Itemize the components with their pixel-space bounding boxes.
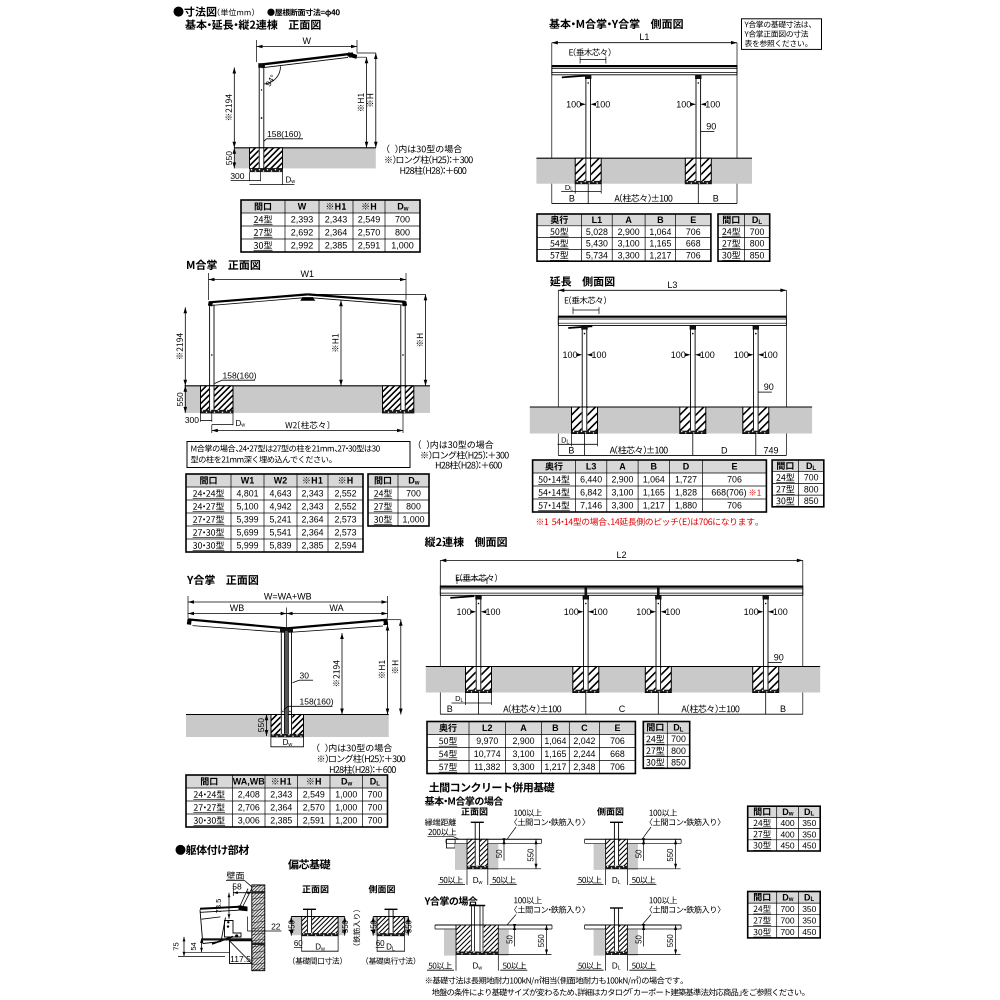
- svg-text:2,244: 2,244: [573, 749, 595, 759]
- svg-text:2,549: 2,549: [358, 215, 381, 225]
- svg-text:L: L: [680, 726, 684, 733]
- svg-text:700: 700: [368, 790, 383, 800]
- svg-text:3,100: 3,100: [611, 488, 633, 498]
- svg-text:400: 400: [780, 829, 794, 839]
- svg-text:350: 350: [802, 904, 816, 914]
- svg-text:2,900: 2,900: [611, 475, 633, 485]
- svg-text:B: B: [657, 215, 664, 225]
- svg-text:550: 550: [404, 919, 413, 933]
- svg-text:L: L: [376, 780, 380, 787]
- svg-text:11,382: 11,382: [474, 762, 500, 772]
- svg-text:1,064: 1,064: [649, 227, 671, 237]
- svg-text:L2: L2: [482, 723, 493, 733]
- svg-text:668: 668: [686, 239, 701, 249]
- svg-text:W=WA+WB: W=WA+WB: [264, 592, 312, 602]
- svg-text:850: 850: [671, 758, 686, 768]
- svg-text:6,440: 6,440: [580, 475, 602, 485]
- svg-text:1,880: 1,880: [675, 501, 697, 511]
- svg-text:1,000: 1,000: [335, 790, 357, 800]
- svg-text:1,217: 1,217: [544, 762, 566, 772]
- svg-text:2,692: 2,692: [291, 228, 314, 238]
- svg-text:W: W: [303, 36, 312, 46]
- svg-text:100: 100: [744, 607, 759, 617]
- svg-text:800: 800: [750, 239, 765, 249]
- svg-text:2,591: 2,591: [303, 816, 325, 826]
- svg-text:100: 100: [566, 100, 581, 110]
- svg-text:100: 100: [700, 350, 715, 360]
- svg-text:w: w: [290, 179, 295, 185]
- svg-text:1,828: 1,828: [675, 488, 697, 498]
- svg-text:706: 706: [610, 736, 625, 746]
- svg-text:700: 700: [780, 916, 794, 926]
- svg-text:L: L: [811, 811, 815, 818]
- svg-text:300: 300: [230, 171, 244, 181]
- svg-text:706: 706: [610, 762, 625, 772]
- svg-text:100: 100: [636, 607, 651, 617]
- svg-text:2,570: 2,570: [358, 228, 381, 238]
- svg-text:5,100: 5,100: [236, 502, 258, 512]
- svg-text:1,217: 1,217: [643, 501, 665, 511]
- svg-text:L3: L3: [667, 280, 677, 290]
- svg-text:450: 450: [780, 840, 794, 850]
- svg-text:2,348: 2,348: [573, 762, 595, 772]
- svg-text:3,300: 3,300: [512, 762, 534, 772]
- svg-text:B: B: [780, 704, 786, 714]
- svg-text:2,549: 2,549: [303, 790, 325, 800]
- svg-text:W1: W1: [301, 269, 315, 279]
- svg-text:5,734: 5,734: [586, 250, 608, 260]
- svg-text:2,573: 2,573: [334, 515, 356, 525]
- svg-text:5,541: 5,541: [269, 528, 291, 538]
- svg-text:w: w: [788, 896, 794, 903]
- svg-text:w: w: [788, 811, 794, 818]
- svg-text:117.5: 117.5: [230, 954, 251, 964]
- svg-text:5,699: 5,699: [236, 528, 258, 538]
- svg-text:5,241: 5,241: [269, 515, 291, 525]
- svg-text:4,801: 4,801: [236, 489, 258, 499]
- svg-text:2,343: 2,343: [270, 790, 292, 800]
- svg-text:158(160): 158(160): [267, 129, 301, 139]
- svg-text:w: w: [346, 780, 352, 787]
- svg-text:L1: L1: [592, 215, 603, 225]
- svg-text:2,992: 2,992: [291, 241, 314, 251]
- svg-text:50: 50: [634, 935, 643, 944]
- svg-text:L2: L2: [617, 550, 627, 560]
- svg-text:L1: L1: [639, 32, 649, 42]
- svg-text:90: 90: [764, 382, 774, 392]
- svg-text:700: 700: [804, 473, 819, 483]
- svg-text:7,146: 7,146: [580, 501, 602, 511]
- svg-text:1,200: 1,200: [335, 816, 357, 826]
- svg-text:400: 400: [780, 818, 794, 828]
- svg-text:100: 100: [773, 607, 788, 617]
- svg-text:5,999: 5,999: [236, 541, 258, 551]
- svg-text:100: 100: [763, 350, 778, 360]
- svg-text:30: 30: [300, 671, 310, 681]
- svg-text:550: 550: [175, 392, 185, 406]
- svg-text:W2: W2: [274, 476, 288, 486]
- svg-text:2,591: 2,591: [358, 241, 381, 251]
- svg-text:450: 450: [369, 919, 378, 933]
- svg-text:L: L: [392, 946, 395, 952]
- svg-text:WA,WB: WA,WB: [233, 777, 265, 787]
- svg-text:1,064: 1,064: [544, 736, 566, 746]
- svg-text:50: 50: [505, 935, 514, 944]
- svg-text:L: L: [811, 896, 815, 903]
- svg-text:2,552: 2,552: [334, 502, 356, 512]
- svg-text:1,000: 1,000: [335, 803, 357, 813]
- svg-text:50: 50: [634, 849, 643, 858]
- svg-text:3,300: 3,300: [618, 250, 640, 260]
- svg-text:1,165: 1,165: [643, 488, 665, 498]
- svg-text:w: w: [240, 423, 245, 429]
- svg-text:100: 100: [486, 607, 501, 617]
- svg-text:550: 550: [341, 919, 350, 933]
- svg-text:2,706: 2,706: [238, 803, 260, 813]
- svg-text:350: 350: [802, 829, 816, 839]
- svg-text:100: 100: [595, 100, 610, 110]
- svg-text:700: 700: [671, 734, 686, 744]
- svg-text:2,042: 2,042: [573, 736, 595, 746]
- svg-text:2,900: 2,900: [512, 736, 534, 746]
- svg-text:B: B: [568, 445, 574, 455]
- svg-text:706: 706: [686, 227, 701, 237]
- svg-text:1,165: 1,165: [649, 239, 671, 249]
- svg-text:100: 100: [456, 607, 471, 617]
- svg-text:158(160): 158(160): [223, 371, 257, 381]
- svg-text:550: 550: [224, 151, 234, 165]
- svg-text:450: 450: [802, 840, 816, 850]
- svg-text:WA: WA: [329, 603, 343, 613]
- svg-text:550: 550: [666, 934, 675, 948]
- svg-text:550: 550: [666, 848, 675, 862]
- svg-text:2,364: 2,364: [301, 515, 323, 525]
- svg-text:2,408: 2,408: [238, 790, 260, 800]
- svg-text:w: w: [287, 742, 292, 748]
- svg-text:2,343: 2,343: [325, 215, 348, 225]
- svg-text:100: 100: [592, 350, 607, 360]
- svg-text:B: B: [569, 194, 575, 204]
- svg-text:2,393: 2,393: [291, 215, 314, 225]
- svg-text:2,900: 2,900: [618, 227, 640, 237]
- svg-text:700: 700: [780, 927, 794, 937]
- svg-text:100: 100: [564, 607, 579, 617]
- svg-text:1,000: 1,000: [391, 241, 414, 251]
- svg-text:2,570: 2,570: [303, 803, 325, 813]
- svg-text:100: 100: [562, 350, 577, 360]
- svg-text:4,643: 4,643: [269, 489, 291, 499]
- svg-text:350: 350: [802, 818, 816, 828]
- svg-text:2,594: 2,594: [334, 541, 356, 551]
- svg-text:706: 706: [686, 250, 701, 260]
- svg-text:2,385: 2,385: [301, 541, 323, 551]
- svg-text:L: L: [618, 966, 621, 972]
- svg-text:706: 706: [727, 475, 742, 485]
- svg-text:w: w: [403, 206, 409, 213]
- svg-text:B: B: [651, 462, 658, 472]
- svg-text:700: 700: [395, 215, 410, 225]
- svg-text:54: 54: [189, 942, 198, 950]
- svg-text:L: L: [812, 465, 816, 472]
- svg-text:3,006: 3,006: [238, 816, 260, 826]
- svg-text:L: L: [567, 439, 570, 445]
- svg-text:100: 100: [676, 100, 691, 110]
- svg-text:5,028: 5,028: [586, 227, 608, 237]
- svg-text:706: 706: [727, 501, 742, 511]
- svg-text:5,430: 5,430: [586, 239, 608, 249]
- svg-text:2,385: 2,385: [325, 241, 348, 251]
- svg-text:94°: 94°: [264, 73, 278, 88]
- svg-text:2,552: 2,552: [334, 489, 356, 499]
- svg-text:100: 100: [665, 607, 680, 617]
- svg-text:158(160): 158(160): [300, 697, 334, 707]
- svg-text:4,942: 4,942: [269, 502, 291, 512]
- svg-text:B: B: [447, 704, 453, 714]
- svg-text:2,343: 2,343: [301, 489, 323, 499]
- svg-text:6,842: 6,842: [580, 488, 602, 498]
- svg-text:700: 700: [368, 803, 383, 813]
- svg-text:L: L: [758, 219, 762, 226]
- svg-text:w: w: [477, 880, 482, 886]
- svg-text:E: E: [614, 723, 620, 733]
- svg-text:2,364: 2,364: [325, 228, 348, 238]
- svg-text:800: 800: [804, 484, 819, 494]
- svg-text:1,217: 1,217: [649, 250, 671, 260]
- svg-text:668: 668: [610, 749, 625, 759]
- svg-text:B: B: [713, 194, 719, 204]
- svg-text:WB: WB: [230, 603, 245, 613]
- svg-text:700: 700: [368, 816, 383, 826]
- svg-text:22: 22: [271, 922, 281, 932]
- svg-text:100: 100: [705, 100, 720, 110]
- svg-text:850: 850: [804, 496, 819, 506]
- svg-text:W1: W1: [241, 476, 255, 486]
- svg-text:350: 350: [802, 916, 816, 926]
- svg-text:A: A: [625, 215, 632, 225]
- svg-text:2,573: 2,573: [334, 528, 356, 538]
- svg-text:10,774: 10,774: [474, 749, 501, 759]
- svg-text:700: 700: [780, 904, 794, 914]
- svg-text:w: w: [477, 966, 482, 972]
- svg-text:L: L: [570, 187, 573, 193]
- svg-text:1,000: 1,000: [402, 515, 424, 525]
- svg-text:9,970: 9,970: [476, 736, 498, 746]
- svg-text:2,385: 2,385: [270, 816, 292, 826]
- svg-text:450: 450: [287, 919, 296, 933]
- svg-text:668(706): 668(706): [711, 488, 746, 498]
- svg-text:3,300: 3,300: [611, 501, 633, 511]
- svg-text:100: 100: [671, 350, 686, 360]
- svg-text:5,399: 5,399: [236, 515, 258, 525]
- svg-text:B: B: [552, 723, 559, 733]
- svg-text:D: D: [721, 445, 728, 455]
- svg-text:w: w: [320, 946, 325, 952]
- svg-text:300: 300: [185, 415, 199, 425]
- svg-text:5,839: 5,839: [269, 541, 291, 551]
- svg-text:E: E: [690, 215, 696, 225]
- svg-text:2,364: 2,364: [301, 528, 323, 538]
- svg-text:1,165: 1,165: [544, 749, 566, 759]
- svg-text:3,100: 3,100: [512, 749, 534, 759]
- svg-text:C: C: [619, 704, 626, 714]
- svg-text:2,364: 2,364: [270, 803, 292, 813]
- svg-text:100: 100: [593, 607, 608, 617]
- svg-text:58: 58: [232, 882, 242, 892]
- svg-text:1,727: 1,727: [675, 475, 697, 485]
- svg-text:D: D: [683, 462, 690, 472]
- svg-text:700: 700: [406, 489, 421, 499]
- svg-text:450: 450: [802, 927, 816, 937]
- svg-text:E: E: [731, 462, 737, 472]
- svg-text:90: 90: [774, 652, 784, 662]
- svg-text:800: 800: [395, 228, 410, 238]
- svg-text:800: 800: [671, 746, 686, 756]
- svg-text:50: 50: [495, 849, 504, 858]
- svg-text:90: 90: [706, 121, 716, 131]
- svg-text:1,064: 1,064: [643, 475, 665, 485]
- svg-text:w: w: [414, 479, 420, 486]
- svg-text:A: A: [520, 723, 527, 733]
- svg-text:A: A: [619, 462, 626, 472]
- svg-text:C: C: [581, 723, 588, 733]
- svg-text:850: 850: [750, 250, 765, 260]
- svg-text:2,343: 2,343: [301, 502, 323, 512]
- svg-text:L: L: [461, 698, 464, 704]
- svg-text:800: 800: [406, 502, 421, 512]
- svg-text:W: W: [298, 202, 307, 212]
- svg-text:75: 75: [172, 942, 181, 950]
- svg-text:L3: L3: [586, 462, 597, 472]
- svg-text:550: 550: [527, 848, 536, 862]
- svg-text:550: 550: [537, 934, 546, 948]
- svg-text:3,100: 3,100: [618, 239, 640, 249]
- svg-text:700: 700: [750, 227, 765, 237]
- svg-text:L: L: [618, 880, 621, 886]
- svg-text:749: 749: [763, 445, 778, 455]
- svg-text:550: 550: [256, 718, 266, 732]
- svg-text:100: 100: [734, 350, 749, 360]
